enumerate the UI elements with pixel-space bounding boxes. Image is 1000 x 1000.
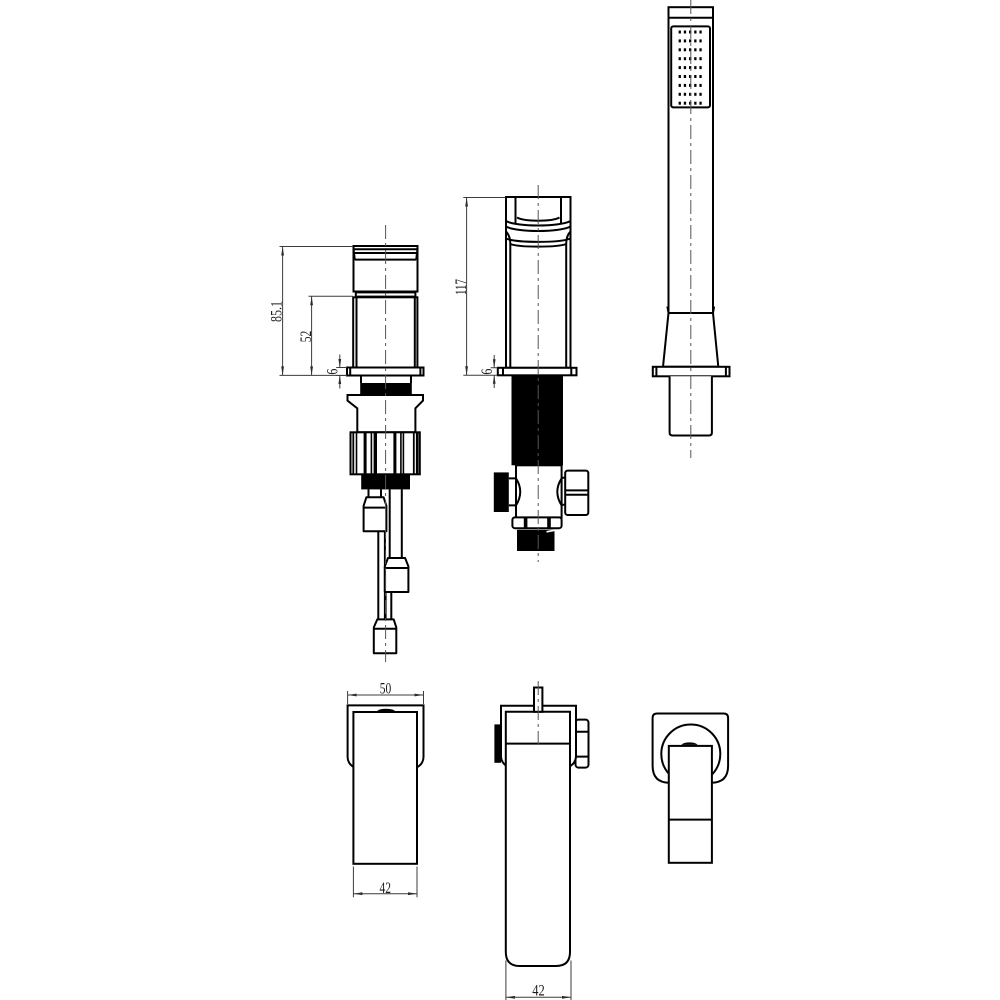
svg-text:85.1: 85.1 <box>269 301 286 322</box>
svg-text:6: 6 <box>479 368 496 374</box>
svg-text:6: 6 <box>325 368 342 374</box>
svg-text:42: 42 <box>379 880 391 897</box>
svg-text:117: 117 <box>453 279 470 295</box>
svg-text:50: 50 <box>380 681 392 698</box>
svg-text:42: 42 <box>532 983 545 1000</box>
svg-text:52: 52 <box>298 331 315 343</box>
